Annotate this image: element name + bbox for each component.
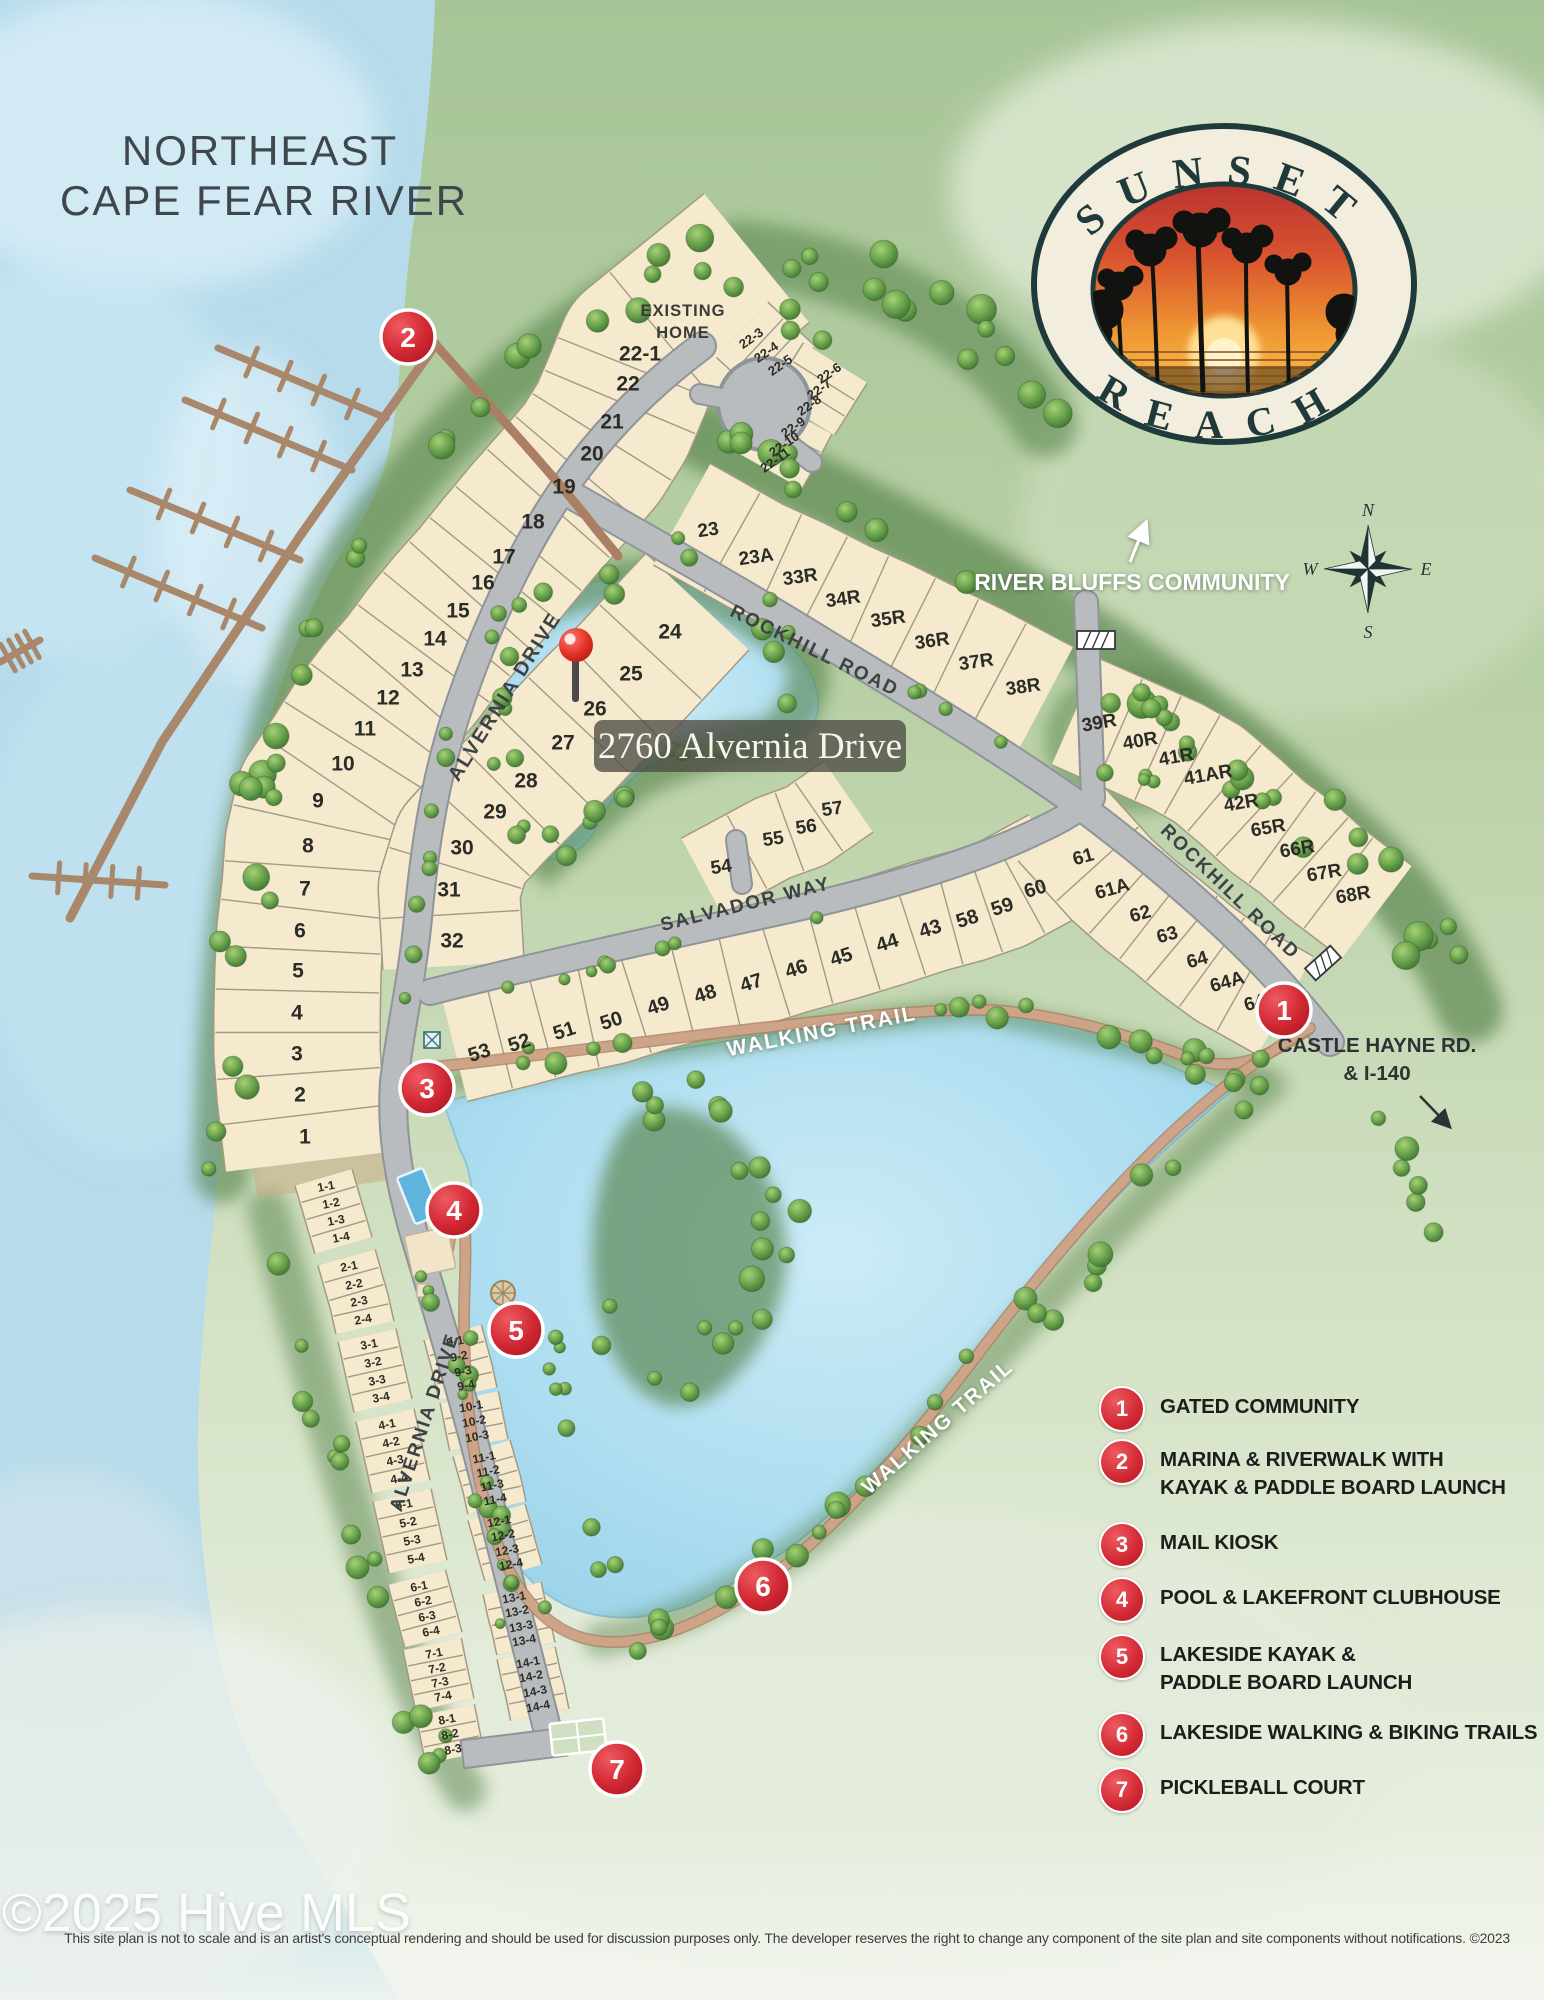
marker-number: 5 (508, 1315, 524, 1346)
tree (463, 1331, 478, 1346)
tree (439, 727, 452, 740)
tree (781, 321, 800, 340)
lot-label: 9 (312, 790, 324, 813)
tree (644, 266, 661, 283)
lot-label: 10 (331, 753, 354, 776)
callout-text: 2760 Alvernia Drive (598, 726, 902, 767)
lot-label: 2 (294, 1084, 306, 1107)
tree (681, 1383, 700, 1402)
tree (534, 583, 553, 602)
lot-label: 1 (299, 1126, 311, 1149)
tree (538, 1601, 551, 1614)
tree (1409, 1176, 1427, 1194)
tree (225, 946, 246, 967)
tree (752, 1309, 772, 1329)
tree (863, 278, 886, 301)
tree (616, 790, 633, 807)
tree (986, 1007, 1008, 1029)
tree (731, 1162, 748, 1179)
tree (1185, 1064, 1205, 1084)
tree (780, 299, 801, 320)
tree (681, 549, 698, 566)
tree (1097, 1025, 1121, 1049)
tree (548, 1330, 563, 1345)
tree (763, 592, 778, 607)
tree (712, 1333, 734, 1355)
tree (584, 800, 606, 822)
tree (1407, 1193, 1426, 1212)
lot-label: 55 (761, 827, 785, 851)
tree (559, 974, 570, 985)
legend-label: GATED COMMUNITY (1160, 1386, 1359, 1421)
lot-label: 17 (492, 546, 515, 569)
tree (261, 892, 278, 909)
lot-label: 14 (423, 628, 447, 651)
lot-label: 23 (696, 518, 720, 542)
tree (1250, 1077, 1268, 1095)
tree (967, 294, 997, 324)
tree (949, 997, 969, 1017)
tree (1392, 942, 1420, 970)
tree (583, 1519, 601, 1537)
tree (694, 262, 711, 279)
dock-tie (58, 863, 60, 893)
tree (783, 259, 801, 277)
legend-number: 6 (1099, 1712, 1145, 1758)
lot-label: 26 (583, 698, 606, 721)
lot-label: 4 (291, 1002, 303, 1025)
map-marker-2: 2 (381, 310, 435, 364)
compass-s: S (1364, 622, 1373, 642)
tree (786, 1544, 809, 1567)
river-title: NORTHEAST CAPE FEAR RIVER (60, 126, 460, 226)
tree (1395, 1137, 1419, 1161)
tree (223, 1056, 243, 1076)
tree (978, 321, 995, 338)
tree (424, 804, 438, 818)
tree (410, 1705, 433, 1728)
tree (409, 896, 425, 912)
tree (672, 532, 685, 545)
map-marker-4: 4 (427, 1183, 481, 1237)
legend-item-7: 7PICKLEBALL COURT (1099, 1767, 1365, 1813)
tree (828, 1501, 845, 1518)
tree (415, 1271, 427, 1283)
tree (202, 1162, 216, 1176)
tree (333, 1436, 350, 1453)
tree (331, 1452, 349, 1470)
tree (267, 754, 285, 772)
tree (687, 1071, 705, 1089)
tree (267, 1252, 290, 1275)
lot-label: 8 (302, 835, 314, 858)
lot-label: 20 (580, 443, 603, 466)
marker-number: 3 (419, 1073, 435, 1104)
tree (468, 1494, 482, 1508)
tree (291, 665, 312, 686)
tree (590, 1562, 606, 1578)
tree (586, 966, 597, 977)
tree (1252, 1050, 1269, 1067)
tree (865, 519, 888, 542)
tree (995, 736, 1008, 749)
tree (751, 1212, 770, 1231)
tree (243, 864, 270, 891)
tree (586, 310, 609, 333)
tree (1146, 1048, 1162, 1064)
tree (785, 481, 802, 498)
mail-kiosk (424, 1032, 440, 1048)
tree (882, 290, 910, 318)
tree (418, 1752, 440, 1774)
tree (302, 1410, 319, 1427)
marker-number: 7 (609, 1754, 625, 1785)
tree (927, 1394, 943, 1410)
legend-number: 1 (1099, 1386, 1145, 1432)
legend-number: 4 (1099, 1577, 1145, 1623)
gate-icon (1077, 631, 1115, 649)
legend-item-4: 4POOL & LAKEFRONT CLUBHOUSE (1099, 1577, 1501, 1623)
tree (405, 946, 422, 963)
tree (1224, 1073, 1243, 1092)
lot-label: 30 (450, 837, 473, 860)
tree (487, 757, 500, 770)
tree (958, 349, 979, 370)
existing-home-label2: HOME (656, 324, 710, 342)
tree (305, 619, 323, 637)
pin-head (559, 628, 593, 662)
existing-home-label: EXISTING (640, 302, 725, 320)
map-marker-5: 5 (489, 1303, 543, 1357)
dock-tie (84, 865, 86, 895)
lot-label: 22 (616, 373, 639, 396)
lot-label: 15 (446, 600, 470, 623)
tree (1393, 1160, 1410, 1177)
legend-label: LAKESIDE WALKING & BIKING TRAILS (1160, 1712, 1537, 1747)
dock-tie (137, 868, 139, 898)
lot-label: 29 (483, 801, 506, 824)
tree (935, 1004, 947, 1016)
tree (837, 502, 857, 522)
tree (599, 565, 619, 585)
tree (1324, 789, 1346, 811)
lot-label: 16 (471, 572, 494, 595)
marker-number: 1 (1276, 995, 1292, 1026)
tree (651, 1619, 667, 1635)
tree (352, 538, 367, 553)
map-marker-3: 3 (400, 1061, 454, 1115)
tree (1181, 1052, 1194, 1065)
legend-item-3: 3MAIL KIOSK (1099, 1522, 1278, 1568)
tree (908, 686, 922, 700)
tree (600, 957, 616, 973)
lot-label: 27 (551, 732, 574, 755)
tree (512, 598, 527, 613)
tree (505, 1575, 519, 1589)
tree (647, 243, 670, 266)
tree (516, 1056, 530, 1070)
legend-label: POOL & LAKEFRONT CLUBHOUSE (1160, 1577, 1501, 1612)
legend-item-1: 1GATED COMMUNITY (1099, 1386, 1359, 1432)
tree (545, 1052, 567, 1074)
tree (1349, 828, 1368, 847)
tree (1130, 1164, 1153, 1187)
tree (506, 749, 524, 767)
tree (870, 240, 898, 268)
tree (1133, 684, 1151, 702)
tree (1371, 1111, 1386, 1126)
tree (648, 1371, 662, 1385)
marker-number: 2 (400, 322, 416, 353)
tree (697, 1321, 712, 1336)
tree (1165, 1160, 1181, 1176)
lot-label: 56 (794, 815, 818, 839)
tree (266, 789, 283, 806)
tree (613, 1033, 632, 1052)
tree (812, 1525, 826, 1539)
sunset-reach-logo: SUNSET REACH (1034, 126, 1414, 447)
tree (495, 1619, 505, 1629)
legend-item-6: 6LAKESIDE WALKING & BIKING TRAILS (1099, 1712, 1537, 1758)
lot-label: 18 (521, 511, 545, 534)
tree (813, 331, 832, 350)
tree (1142, 699, 1161, 718)
tree (1450, 946, 1468, 964)
legend-label: LAKESIDE KAYAK &PADDLE BOARD LAUNCH (1160, 1634, 1412, 1696)
map-marker-1: 1 (1257, 983, 1311, 1037)
lot-label: 12 (376, 687, 399, 710)
tree (263, 723, 289, 749)
site-plan-map: 1234567891011121314151617181920212222-12… (0, 0, 1544, 2000)
lot-label: 6 (294, 920, 306, 943)
lot-label: 54 (709, 855, 733, 879)
marker-number: 6 (755, 1571, 771, 1602)
tree (779, 1247, 795, 1263)
tree (811, 912, 823, 924)
tree (765, 1187, 781, 1203)
tree (607, 1557, 623, 1573)
compass-w: W (1303, 559, 1320, 579)
tree (422, 861, 437, 876)
river-title-line2: CAPE FEAR RIVER (60, 176, 460, 226)
river-title-line1: NORTHEAST (60, 126, 460, 176)
lot-label: 19 (552, 476, 575, 499)
legend-label: MARINA & RIVERWALK WITHKAYAK & PADDLE BO… (1160, 1439, 1506, 1501)
marker-number: 4 (446, 1195, 462, 1226)
lot-label: 5 (292, 960, 304, 983)
tree (508, 826, 526, 844)
pin-highlight (565, 634, 576, 645)
address-callout: 2760 Alvernia Drive (594, 720, 906, 772)
tree (1097, 764, 1114, 781)
tree (809, 273, 828, 292)
tree (629, 1642, 646, 1659)
tree (752, 1539, 773, 1560)
legend-number: 3 (1099, 1522, 1145, 1568)
tree (239, 777, 263, 801)
tree (1379, 847, 1404, 872)
tree (801, 248, 818, 265)
tree (603, 1299, 617, 1313)
tree (543, 1363, 556, 1376)
lot-label: 7 (299, 878, 311, 901)
lot-label: 57 (820, 797, 844, 821)
legend-item-2: 2MARINA & RIVERWALK WITHKAYAK & PADDLE B… (1099, 1439, 1506, 1501)
tree (549, 1383, 562, 1396)
dock-tie (111, 866, 113, 896)
tree (709, 1099, 732, 1122)
tree (686, 224, 714, 252)
legend-number: 5 (1099, 1634, 1145, 1680)
tree (367, 1586, 389, 1608)
tree (604, 584, 625, 605)
tree (778, 694, 797, 713)
tree (587, 1042, 601, 1056)
tree (292, 1391, 312, 1411)
tree (295, 1339, 308, 1352)
tree (517, 334, 541, 358)
tree (429, 433, 456, 460)
tree (788, 1199, 812, 1223)
tree (210, 931, 231, 952)
tree (1019, 998, 1034, 1013)
tree (542, 826, 559, 843)
tree (1199, 1048, 1215, 1064)
tree (485, 630, 499, 644)
lot-label: 13 (400, 659, 423, 682)
map-marker-7: 7 (590, 1742, 644, 1796)
tree (939, 702, 953, 716)
tree (1347, 853, 1368, 874)
tree (592, 1336, 611, 1355)
legend-label: MAIL KIOSK (1160, 1522, 1278, 1557)
tree (749, 1157, 771, 1179)
tree (1440, 918, 1457, 935)
tree (1138, 774, 1150, 786)
compass-n: N (1361, 500, 1375, 520)
castle-hayne-label: CASTLE HAYNE RD. (1278, 1034, 1477, 1057)
lot-label: 21 (600, 411, 624, 434)
tree (930, 281, 954, 305)
lot-label: 28 (514, 770, 538, 793)
tree (1084, 1274, 1102, 1292)
tree (1018, 381, 1046, 409)
tree (973, 995, 987, 1009)
lot-label: 25 (619, 663, 643, 686)
tree (728, 1321, 743, 1336)
legend-label: PICKLEBALL COURT (1160, 1767, 1365, 1802)
tree (502, 981, 514, 993)
tree (1088, 1242, 1113, 1267)
river-bluffs-label: RIVER BLUFFS COMMUNITY (974, 569, 1290, 595)
legend-number: 7 (1099, 1767, 1145, 1813)
tree (422, 1293, 440, 1311)
tree (959, 1349, 974, 1364)
tree (1235, 1101, 1253, 1119)
tree (1043, 399, 1072, 428)
tree (730, 432, 752, 454)
tree (1028, 1304, 1047, 1323)
tree (724, 277, 744, 297)
lot-label: 22-1 (619, 343, 661, 366)
tree (556, 846, 576, 866)
tree (346, 1556, 369, 1579)
lot-label: 31 (437, 879, 461, 902)
map-canvas: 1234567891011121314151617181920212222-12… (0, 0, 1544, 2000)
tree (491, 606, 507, 622)
castle-hayne-label2: & I-140 (1343, 1062, 1410, 1085)
legend-number: 2 (1099, 1439, 1145, 1485)
legend-item-5: 5LAKESIDE KAYAK &PADDLE BOARD LAUNCH (1099, 1634, 1412, 1696)
tree (995, 346, 1014, 365)
tree (399, 992, 411, 1004)
lot-label: 24 (658, 621, 682, 644)
tree (235, 1075, 259, 1099)
disclaimer-text: This site plan is not to scale and is an… (30, 1930, 1544, 1946)
tree (471, 398, 490, 417)
lot-label: 3 (291, 1043, 303, 1066)
map-marker-6: 6 (736, 1559, 790, 1613)
tree (342, 1525, 361, 1544)
tree (368, 1552, 383, 1567)
lot-label: 11 (354, 718, 377, 741)
compass-e: E (1420, 559, 1432, 579)
tree (1424, 1223, 1443, 1242)
tree (668, 937, 681, 950)
tree (739, 1266, 765, 1292)
lot-label: 32 (440, 930, 463, 953)
tree (751, 1238, 773, 1260)
gazebo (491, 1281, 515, 1305)
tree (632, 1082, 653, 1103)
tree (558, 1420, 575, 1437)
tree (206, 1122, 226, 1142)
